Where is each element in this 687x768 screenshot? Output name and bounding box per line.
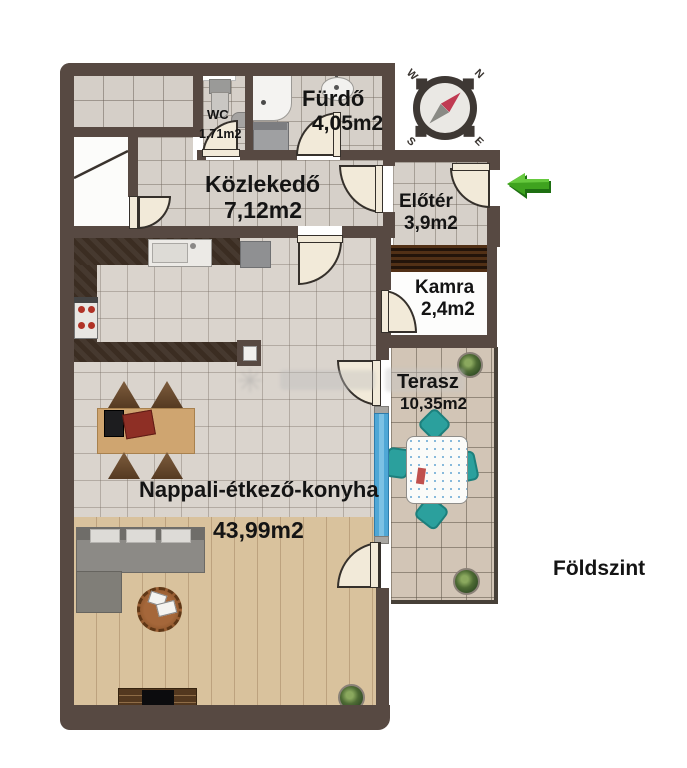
- room-label-nappali-area: 43,99m2: [213, 519, 304, 542]
- shower: [252, 75, 292, 121]
- room-label-kamra-name: Kamra: [415, 278, 474, 297]
- room-label-nappali-name: Nappali-étkező-konyha: [139, 479, 379, 501]
- wall-segment: [342, 226, 383, 238]
- sofa-cushion: [90, 529, 120, 543]
- wall-segment: [73, 127, 203, 137]
- tv: [142, 690, 174, 706]
- wall-segment: [73, 226, 298, 238]
- door-leaf-kozlekedo-eloter: [375, 165, 383, 213]
- wall-segment: [128, 137, 138, 197]
- kitchen-faucet: [190, 243, 196, 249]
- fridge: [240, 241, 271, 268]
- room-label-furdo-name: Fürdő: [302, 88, 364, 110]
- hall-extension-floor: [137, 137, 193, 160]
- wall-segment: [383, 212, 395, 238]
- wall-segment: [487, 247, 497, 347]
- room-label-kozlekedo-name: Közlekedő: [205, 173, 320, 196]
- compass-letter-n: N: [472, 67, 486, 81]
- room-label-eloter-name: Előtér: [399, 192, 453, 211]
- wall-segment: [487, 206, 500, 247]
- compass-icon: N E S W: [403, 66, 487, 150]
- sliding-glass-window: [374, 413, 389, 537]
- wall-segment: [60, 63, 74, 730]
- wall-segment: [60, 705, 390, 730]
- wall-segment: [60, 63, 395, 76]
- wall-segment: [340, 150, 395, 160]
- sofa-cushion: [161, 529, 191, 543]
- door-leaf-entrance: [452, 163, 490, 171]
- stove: [74, 297, 98, 339]
- shower-drain: [261, 100, 266, 105]
- door-leaf-kozlekedo-nappali: [297, 235, 343, 243]
- stove-panel: [74, 297, 98, 303]
- stove-burner: [88, 306, 95, 313]
- watermark-text-blur: [280, 370, 375, 390]
- compass-letter-e: E: [472, 135, 486, 149]
- room-label-terasz-name: Terasz: [397, 372, 459, 392]
- door-leaf-terasz-lower: [370, 542, 379, 588]
- room-label-eloter-area: 3,9m2: [404, 214, 458, 233]
- door-leaf-kamra: [381, 290, 389, 333]
- kitchen-island: [73, 342, 237, 362]
- stove-burner: [88, 322, 95, 329]
- sofa-cushion: [126, 529, 156, 543]
- room-storage-floor: [73, 73, 193, 127]
- room-label-wc-area: 1,71m2: [199, 128, 241, 141]
- stove-burner: [78, 322, 85, 329]
- stove-burner: [78, 306, 85, 313]
- wall-segment: [383, 335, 497, 348]
- stair-diagonal-line: [73, 137, 129, 227]
- floor-title: Földszint: [553, 558, 645, 579]
- sofa-chaise: [76, 571, 122, 613]
- wall-segment: [245, 73, 253, 153]
- floor-plan: ✳ WC 1,71m2 Fürdő 4,05m2 Közlekedő 7,12m…: [0, 0, 687, 768]
- wardrobe: [391, 245, 487, 272]
- compass-rotated-body: N E S W: [386, 49, 505, 168]
- room-label-furdo-area: 4,05m2: [312, 113, 383, 134]
- table-red-book: [122, 410, 156, 440]
- washing-machine-panel: [253, 122, 287, 130]
- terrace-table: [406, 436, 468, 504]
- wall-segment: [376, 588, 389, 718]
- door-leaf-wc: [202, 149, 240, 157]
- wall-segment: [240, 150, 297, 160]
- compass-letter-s: S: [404, 135, 418, 149]
- entrance-arrow-icon: [505, 168, 553, 200]
- room-label-wc-name: WC: [207, 108, 229, 121]
- room-label-terasz-area: 10,35m2: [400, 395, 467, 412]
- room-label-kozlekedo-area: 7,12m2: [224, 199, 302, 222]
- watermark-logo-icon: ✳: [233, 364, 267, 398]
- plant-icon: [453, 568, 480, 595]
- kitchen-sink-basin: [152, 243, 188, 263]
- door-leaf-stairwell: [129, 196, 138, 229]
- room-label-kamra-area: 2,4m2: [421, 300, 475, 319]
